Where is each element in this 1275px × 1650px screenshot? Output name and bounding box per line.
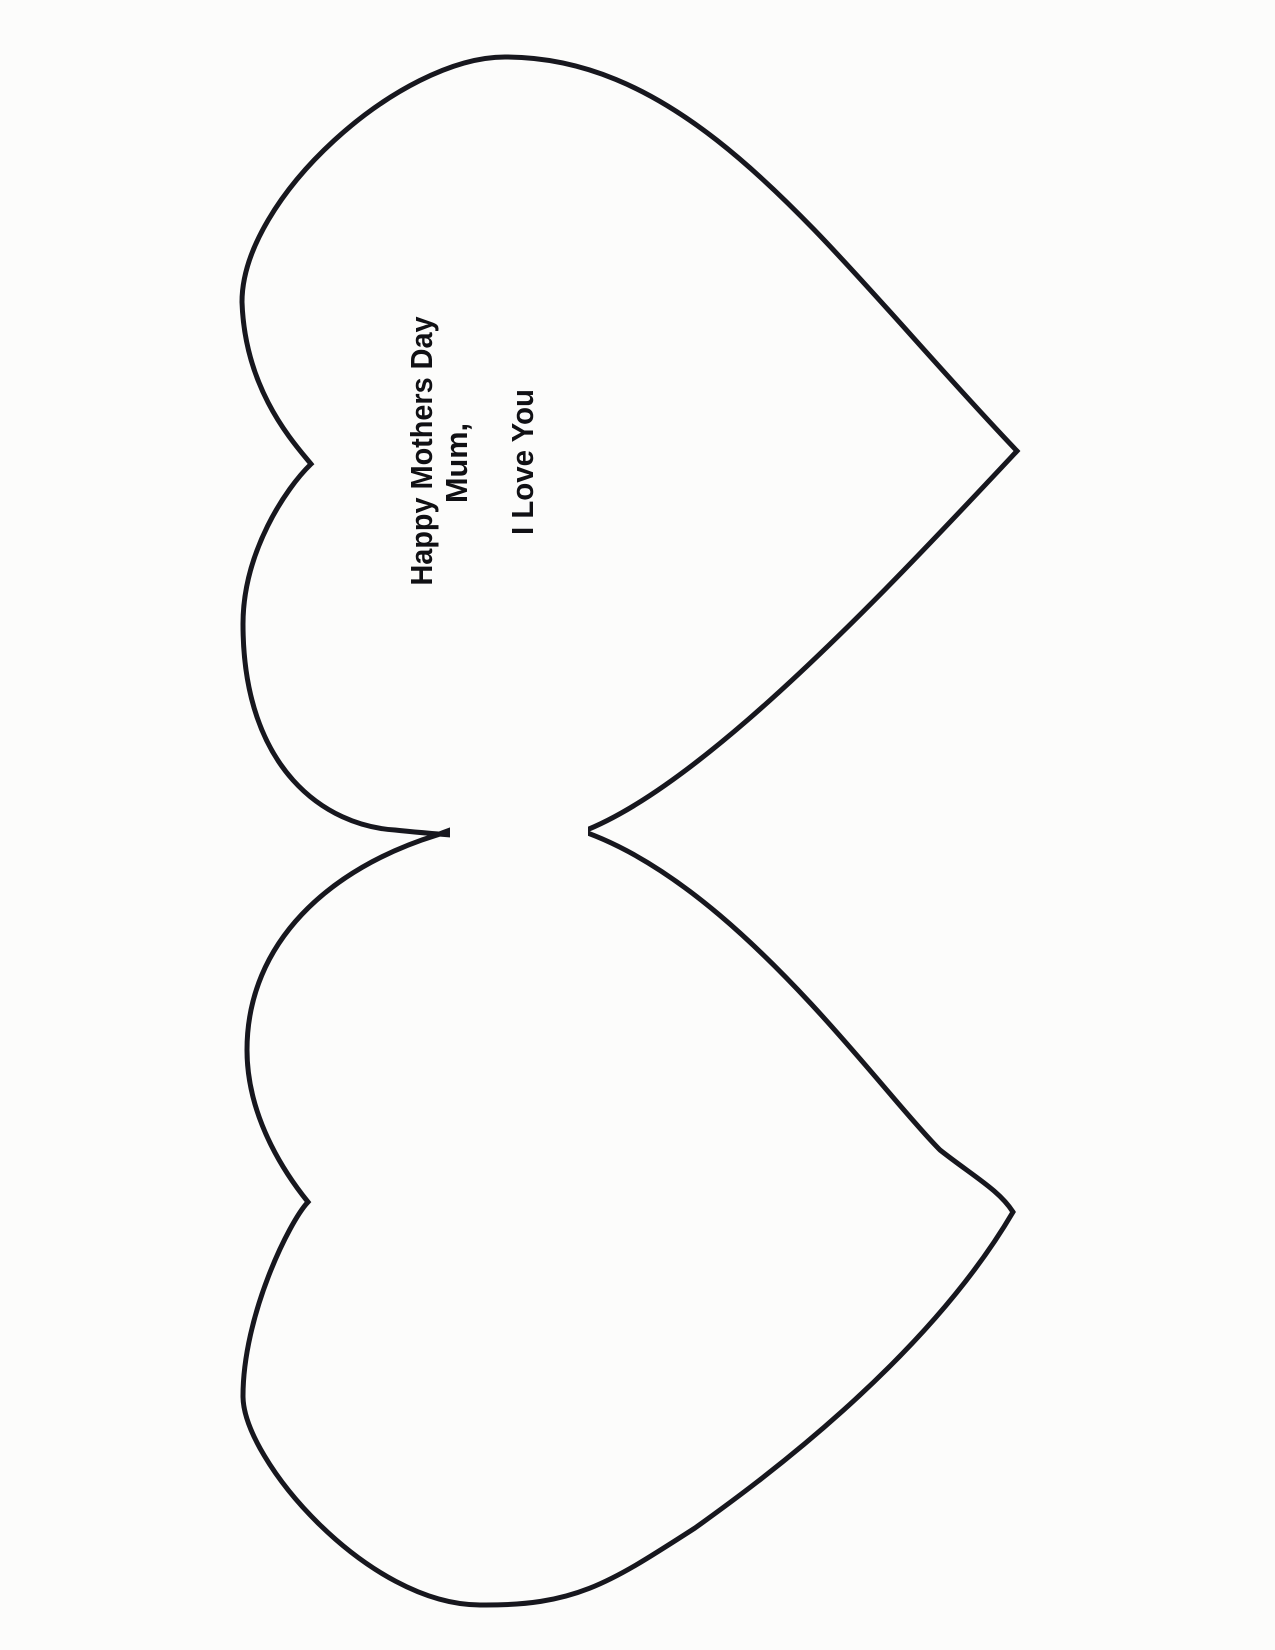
svg-text:I Love You: I Love You — [505, 389, 540, 535]
svg-text:Happy Mothers Day: Happy Mothers Day — [404, 316, 439, 586]
svg-text:Mum,: Mum, — [439, 423, 474, 503]
